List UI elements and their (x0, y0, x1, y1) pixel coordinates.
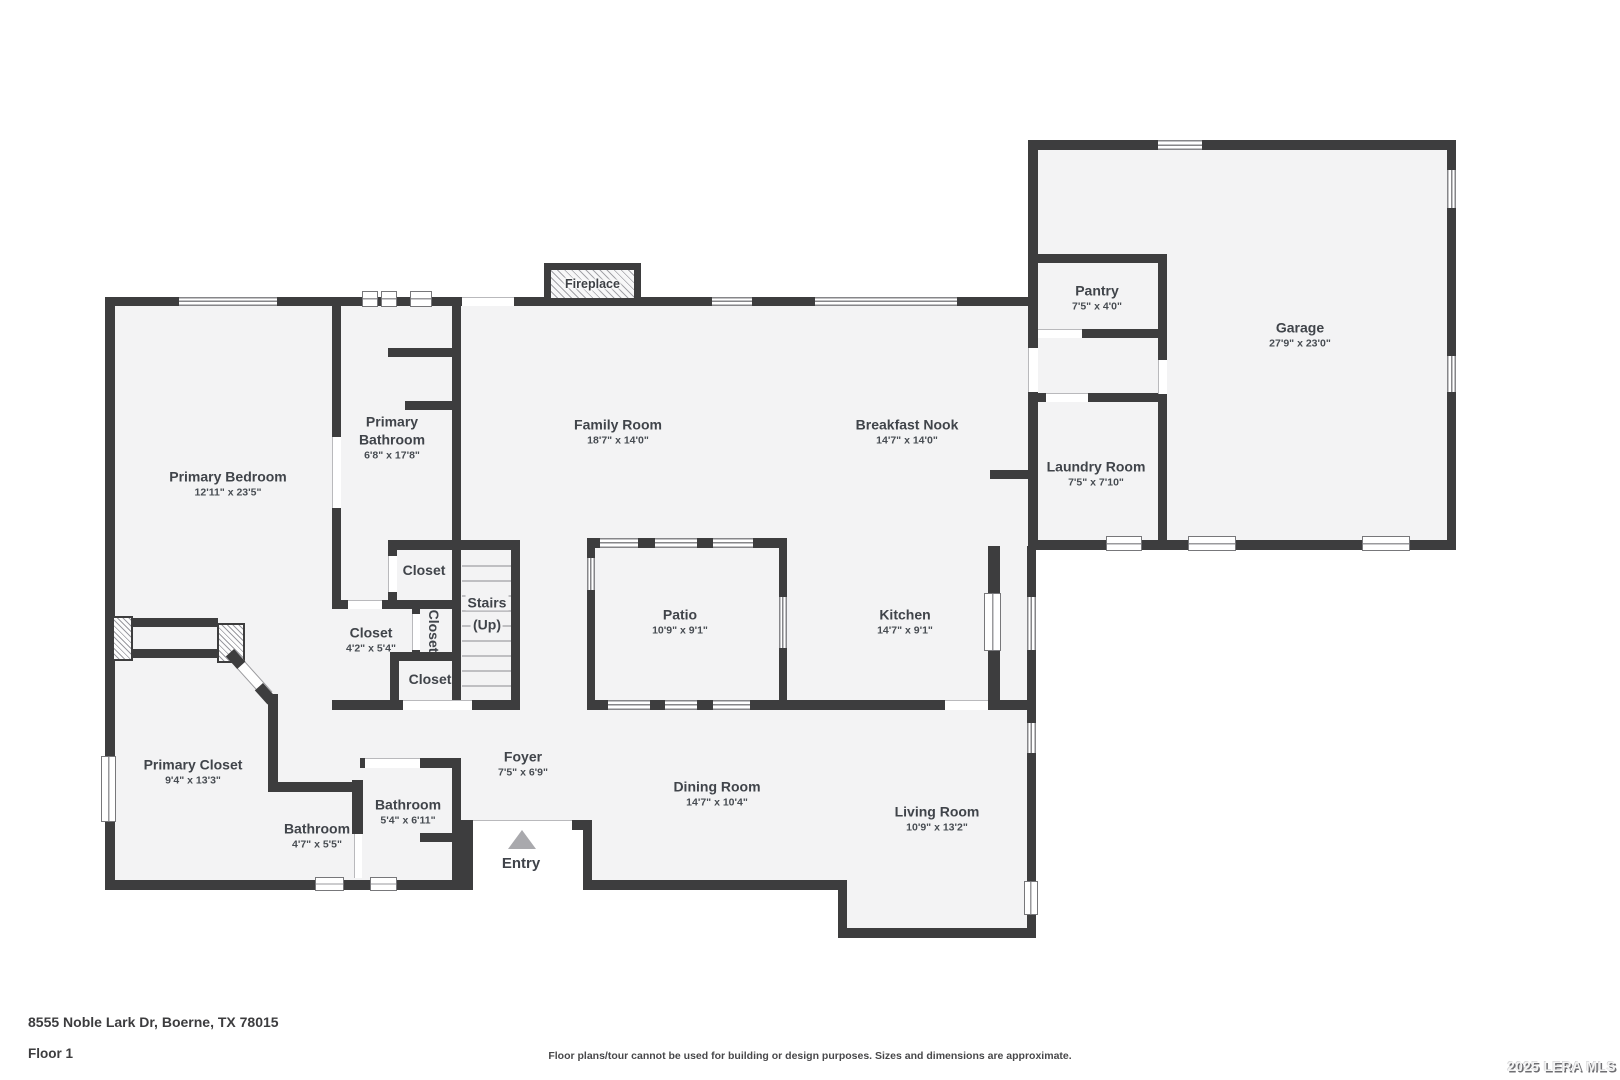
window (1447, 356, 1456, 392)
room-name: Breakfast Nook (856, 416, 959, 434)
room-label-bathroom-small: Bathroom4'7" x 5'5" (284, 820, 350, 851)
window (600, 538, 638, 548)
footer-watermark: 2025 LERA MLS (1507, 1059, 1616, 1074)
wall (1028, 254, 1167, 263)
room-dimensions: 14'7" x 9'1" (877, 624, 933, 637)
room-name: Primary Bathroom (348, 413, 436, 449)
wall (452, 297, 461, 710)
window (410, 291, 432, 307)
room-label-primary-bedroom: Primary Bedroom12'11" x 23'5" (169, 468, 286, 499)
room-dimensions: 9'4" x 13'3" (144, 774, 243, 787)
room-name: Closet (409, 671, 452, 689)
wall (388, 540, 520, 550)
room-label-kitchen: Kitchen14'7" x 9'1" (877, 606, 933, 637)
room-name: Foyer (498, 748, 548, 766)
door-opening (348, 600, 382, 609)
wall (452, 758, 461, 890)
room-dimensions: 6'8" x 17'8" (348, 449, 436, 462)
door-opening (412, 614, 420, 650)
window (587, 558, 595, 590)
window (665, 700, 697, 710)
room-dimensions: 10'9" x 9'1" (652, 624, 708, 637)
wall (1028, 140, 1038, 550)
room-name: Laundry Room (1047, 458, 1146, 476)
room-label-primary-bathroom: Primary Bathroom6'8" x 17'8" (348, 413, 436, 462)
footer-disclaimer: Floor plans/tour cannot be used for buil… (540, 1050, 1080, 1062)
room-label-closet-lower: Closet (409, 671, 452, 689)
room-dimensions: 12'11" x 23'5" (169, 486, 286, 499)
room-label-laundry-room: Laundry Room7'5" x 7'10" (1047, 458, 1146, 489)
window (608, 700, 650, 710)
room-name: Primary Closet (144, 756, 243, 774)
door-opening (403, 700, 472, 710)
room-label-dining-room: Dining Room14'7" x 10'4" (673, 778, 760, 809)
room-dimensions: 5'4" x 6'11" (375, 814, 441, 827)
wall (268, 694, 278, 786)
room-label-bathroom-hall: Bathroom5'4" x 6'11" (375, 796, 441, 827)
room-label-breakfast-nook: Breakfast Nook14'7" x 14'0" (856, 416, 959, 447)
room-name: Closet (424, 610, 442, 653)
room-dimensions: 18'7" x 14'0" (574, 434, 662, 447)
room-dimensions: 14'7" x 10'4" (673, 796, 760, 809)
entry-arrow-icon (508, 830, 536, 849)
window (381, 291, 397, 307)
wall (583, 880, 845, 890)
window (1024, 881, 1038, 915)
floor (109, 300, 1031, 885)
wall (352, 780, 363, 834)
hatch-post (112, 616, 133, 661)
room-dimensions: 7'5" x 7'10" (1047, 476, 1146, 489)
door-opening (354, 834, 362, 878)
window (712, 297, 752, 306)
window (1027, 723, 1036, 753)
window (713, 700, 750, 710)
door-opening (1158, 360, 1167, 394)
floorplan-page: { "floorplan": { "rooms": [ {"id":"prima… (0, 0, 1620, 1080)
room-dimensions: 7'5" x 6'9" (498, 766, 548, 779)
room-name: Living Room (895, 803, 980, 821)
door-opening (473, 820, 572, 830)
footer-floor-label: Floor 1 (28, 1046, 73, 1061)
door-opening (365, 758, 420, 768)
floor (845, 885, 1031, 932)
door-opening (332, 437, 341, 508)
room-dimensions: 27'9" x 23'0" (1269, 337, 1331, 350)
wall (420, 833, 458, 842)
window (362, 291, 378, 307)
room-name: Primary Bedroom (169, 468, 286, 486)
wall (268, 782, 360, 792)
fireplace: Fireplace (544, 263, 641, 305)
window (1188, 536, 1236, 551)
window (1027, 597, 1036, 650)
room-name: Pantry (1072, 282, 1122, 300)
wall (1028, 140, 1456, 150)
window (101, 756, 116, 822)
room-name: Bathroom (284, 820, 350, 838)
wall (405, 401, 452, 410)
wall (511, 540, 520, 710)
room-name: Patio (652, 606, 708, 624)
room-label-closet-mid: Closet (424, 610, 442, 653)
room-name: Kitchen (877, 606, 933, 624)
footer-address: 8555 Noble Lark Dr, Boerne, TX 78015 (28, 1014, 279, 1030)
window (815, 297, 957, 306)
door-opening (1028, 348, 1038, 392)
room-dimensions: 4'2" x 5'4" (346, 642, 396, 655)
room-name: Closet (403, 562, 446, 580)
window (779, 597, 787, 648)
door-opening (945, 700, 988, 710)
room-label-garage: Garage27'9" x 23'0" (1269, 319, 1331, 350)
fireplace-label: Fireplace (565, 277, 620, 291)
wall (388, 348, 452, 357)
window (984, 593, 1001, 651)
room-label-living-room: Living Room10'9" x 13'2" (895, 803, 980, 834)
room-name: Garage (1269, 319, 1331, 337)
door-opening (1046, 393, 1088, 402)
room-label-closet-upper: Closet (403, 562, 446, 580)
window (179, 297, 277, 306)
room-label-foyer: Foyer7'5" x 6'9" (498, 748, 548, 779)
room-dimensions: 10'9" x 13'2" (895, 821, 980, 834)
window (655, 538, 697, 548)
stairs-label: Stairs(Up) (466, 592, 509, 635)
door-opening (1038, 329, 1082, 338)
wall (787, 700, 945, 710)
room-dimensions: 4'7" x 5'5" (284, 838, 350, 851)
wall (1158, 254, 1167, 550)
room-label-closet-hall: Closet4'2" x 5'4" (346, 624, 396, 655)
window (1362, 536, 1410, 551)
window (713, 538, 753, 548)
window (1158, 140, 1202, 150)
room-label-pantry: Pantry7'5" x 4'0" (1072, 282, 1122, 313)
room-label-patio: Patio10'9" x 9'1" (652, 606, 708, 637)
wall (105, 880, 462, 890)
wall (838, 928, 1036, 938)
window (370, 877, 397, 891)
door-opening (388, 556, 397, 592)
wall (332, 700, 403, 710)
room-name: Family Room (574, 416, 662, 434)
window (1447, 170, 1456, 208)
room-name: Bathroom (375, 796, 441, 814)
room-dimensions: 7'5" x 4'0" (1072, 300, 1122, 313)
room-dimensions: 14'7" x 14'0" (856, 434, 959, 447)
door-opening (462, 297, 514, 306)
wall (990, 470, 1028, 479)
wall (398, 652, 460, 661)
room-label-family-room: Family Room18'7" x 14'0" (574, 416, 662, 447)
entry-label: Entry (502, 855, 540, 872)
room-label-primary-closet: Primary Closet9'4" x 13'3" (144, 756, 243, 787)
window (1106, 536, 1142, 551)
room-name: Dining Room (673, 778, 760, 796)
room-name: Closet (346, 624, 396, 642)
window (315, 877, 344, 891)
